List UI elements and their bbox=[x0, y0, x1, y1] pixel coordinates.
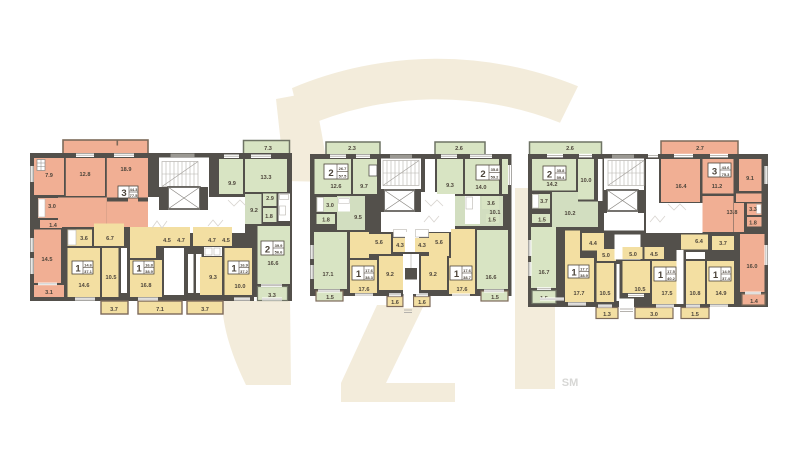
svg-text:17.6: 17.6 bbox=[463, 268, 472, 273]
svg-text:16.9: 16.9 bbox=[240, 263, 249, 268]
svg-text:1: 1 bbox=[136, 264, 142, 275]
svg-text:13.8: 13.8 bbox=[727, 210, 738, 216]
svg-text:37.4: 37.4 bbox=[722, 276, 731, 281]
svg-text:1.5: 1.5 bbox=[538, 218, 546, 224]
svg-text:14.9: 14.9 bbox=[716, 291, 727, 297]
svg-text:16.6: 16.6 bbox=[268, 261, 279, 267]
svg-text:2: 2 bbox=[328, 168, 333, 179]
svg-text:38.9: 38.9 bbox=[145, 269, 154, 274]
svg-text:38.9: 38.9 bbox=[580, 273, 589, 278]
svg-text:3.3: 3.3 bbox=[749, 207, 757, 213]
svg-text:9.7: 9.7 bbox=[360, 184, 368, 190]
svg-text:10.2: 10.2 bbox=[565, 211, 576, 217]
svg-text:3.7: 3.7 bbox=[540, 199, 548, 205]
svg-text:10.8: 10.8 bbox=[690, 291, 701, 297]
svg-text:1: 1 bbox=[571, 268, 577, 279]
svg-text:10.5: 10.5 bbox=[106, 275, 117, 281]
svg-text:9.2: 9.2 bbox=[429, 272, 437, 278]
svg-text:2.6: 2.6 bbox=[455, 146, 463, 152]
svg-text:14.5: 14.5 bbox=[42, 257, 53, 263]
svg-text:9.9: 9.9 bbox=[228, 181, 236, 187]
svg-text:9.2: 9.2 bbox=[250, 208, 258, 214]
svg-text:6.7: 6.7 bbox=[106, 236, 114, 242]
svg-text:3.0: 3.0 bbox=[48, 204, 56, 210]
svg-text:2: 2 bbox=[547, 170, 552, 181]
svg-text:1: 1 bbox=[658, 270, 664, 281]
svg-text:2: 2 bbox=[265, 245, 270, 256]
svg-text:4.5: 4.5 bbox=[163, 238, 171, 244]
svg-text:9.3: 9.3 bbox=[209, 275, 217, 281]
svg-text:4.7: 4.7 bbox=[177, 238, 185, 244]
svg-text:38.3: 38.3 bbox=[365, 275, 374, 280]
svg-text:10.0: 10.0 bbox=[235, 284, 246, 290]
svg-text:16.0: 16.0 bbox=[747, 264, 758, 270]
svg-text:16.6: 16.6 bbox=[486, 275, 497, 281]
svg-text:5.6: 5.6 bbox=[375, 240, 383, 246]
svg-text:2.7: 2.7 bbox=[696, 146, 704, 152]
svg-text:16.7: 16.7 bbox=[539, 270, 550, 276]
svg-text:9.2: 9.2 bbox=[386, 272, 394, 278]
svg-text:10.5: 10.5 bbox=[600, 291, 611, 297]
svg-text:1.6: 1.6 bbox=[391, 300, 399, 306]
svg-text:3.7: 3.7 bbox=[110, 307, 118, 313]
svg-text:14.6: 14.6 bbox=[84, 263, 93, 268]
svg-text:37.1: 37.1 bbox=[84, 269, 93, 274]
svg-text:17.6: 17.6 bbox=[365, 268, 374, 273]
svg-text:1.5: 1.5 bbox=[488, 218, 496, 224]
svg-text:12.8: 12.8 bbox=[80, 172, 91, 178]
svg-text:1.4: 1.4 bbox=[750, 299, 759, 305]
svg-text:6.4: 6.4 bbox=[695, 239, 704, 245]
svg-text:17.5: 17.5 bbox=[667, 269, 676, 274]
svg-text:14.9: 14.9 bbox=[722, 269, 731, 274]
svg-text:14.0: 14.0 bbox=[476, 185, 487, 191]
svg-text:7.1: 7.1 bbox=[156, 307, 164, 313]
svg-text:1.8: 1.8 bbox=[749, 221, 757, 227]
svg-text:1.4: 1.4 bbox=[49, 223, 58, 229]
svg-text:17.5: 17.5 bbox=[662, 291, 673, 297]
svg-text:3: 3 bbox=[712, 167, 717, 178]
svg-text:43.6: 43.6 bbox=[722, 165, 731, 170]
svg-text:39.9: 39.9 bbox=[275, 243, 284, 248]
svg-text:1.8: 1.8 bbox=[322, 218, 330, 224]
svg-text:16.4: 16.4 bbox=[676, 184, 688, 190]
svg-text:3.7: 3.7 bbox=[201, 307, 209, 313]
svg-text:7.3: 7.3 bbox=[264, 146, 272, 152]
svg-text:17.7: 17.7 bbox=[580, 267, 589, 272]
svg-text:9.1: 9.1 bbox=[746, 176, 754, 182]
svg-text:2.6: 2.6 bbox=[566, 146, 574, 152]
svg-text:2: 2 bbox=[480, 169, 485, 180]
svg-text:59.2: 59.2 bbox=[491, 175, 500, 180]
svg-text:1: 1 bbox=[454, 269, 460, 280]
svg-text:4.5: 4.5 bbox=[650, 252, 658, 258]
svg-text:14.6: 14.6 bbox=[79, 283, 90, 289]
svg-text:17.6: 17.6 bbox=[457, 287, 468, 293]
svg-text:2.9: 2.9 bbox=[266, 196, 274, 202]
svg-text:3: 3 bbox=[121, 188, 126, 199]
svg-text:38.7: 38.7 bbox=[463, 275, 472, 280]
svg-text:4.3: 4.3 bbox=[396, 243, 404, 249]
svg-text:37.2: 37.2 bbox=[240, 269, 249, 274]
svg-text:56.6: 56.6 bbox=[275, 250, 284, 255]
svg-text:1.5: 1.5 bbox=[691, 312, 699, 318]
svg-text:17.7: 17.7 bbox=[574, 291, 585, 297]
svg-text:35.8: 35.8 bbox=[557, 168, 566, 173]
svg-text:5.0: 5.0 bbox=[629, 252, 637, 258]
svg-text:12.6: 12.6 bbox=[331, 184, 342, 190]
svg-text:1: 1 bbox=[75, 264, 81, 275]
svg-text:26.7: 26.7 bbox=[339, 166, 348, 171]
svg-text:3.7: 3.7 bbox=[719, 241, 727, 247]
svg-text:16.8: 16.8 bbox=[145, 263, 154, 268]
svg-text:17.1: 17.1 bbox=[323, 272, 334, 278]
svg-text:1.5: 1.5 bbox=[491, 295, 499, 301]
svg-text:1.3: 1.3 bbox=[603, 312, 611, 318]
svg-text:11.2: 11.2 bbox=[712, 184, 723, 190]
svg-text:3.0: 3.0 bbox=[326, 203, 334, 209]
svg-text:13.3: 13.3 bbox=[261, 175, 272, 181]
svg-text:7.9: 7.9 bbox=[45, 173, 53, 179]
svg-text:59.4: 59.4 bbox=[557, 175, 566, 180]
svg-text:5.0: 5.0 bbox=[602, 253, 610, 259]
svg-text:1.5: 1.5 bbox=[326, 295, 334, 301]
svg-text:57.5: 57.5 bbox=[339, 174, 348, 179]
svg-text:1.6: 1.6 bbox=[418, 300, 426, 306]
svg-text:SM: SM bbox=[562, 377, 579, 389]
svg-text:1: 1 bbox=[713, 270, 719, 281]
svg-text:9.5: 9.5 bbox=[354, 215, 362, 221]
svg-text:10.5: 10.5 bbox=[635, 287, 646, 293]
svg-text:35.8: 35.8 bbox=[491, 167, 500, 172]
svg-text:44.3: 44.3 bbox=[130, 187, 139, 192]
svg-text:3.1: 3.1 bbox=[45, 290, 53, 296]
svg-text:10.0: 10.0 bbox=[581, 178, 592, 184]
svg-text:14.2: 14.2 bbox=[547, 182, 558, 188]
svg-text:3.6: 3.6 bbox=[487, 201, 495, 207]
svg-text:40.2: 40.2 bbox=[667, 276, 676, 281]
svg-text:17.6: 17.6 bbox=[359, 287, 370, 293]
svg-text:75.3: 75.3 bbox=[722, 172, 731, 177]
svg-text:4.5: 4.5 bbox=[222, 238, 230, 244]
svg-text:16.8: 16.8 bbox=[141, 283, 152, 289]
svg-text:77.5: 77.5 bbox=[130, 193, 139, 198]
svg-text:1: 1 bbox=[231, 264, 237, 275]
svg-text:4.4: 4.4 bbox=[589, 241, 598, 247]
svg-text:9.3: 9.3 bbox=[446, 183, 454, 189]
svg-text:4.7: 4.7 bbox=[208, 238, 216, 244]
svg-text:4.3: 4.3 bbox=[418, 243, 426, 249]
svg-text:18.9: 18.9 bbox=[121, 167, 132, 173]
svg-text:3.6: 3.6 bbox=[80, 236, 88, 242]
svg-text:3.0: 3.0 bbox=[650, 312, 658, 318]
svg-text:2.3: 2.3 bbox=[348, 146, 356, 152]
svg-text:1.8: 1.8 bbox=[265, 214, 273, 220]
svg-text:5.6: 5.6 bbox=[435, 240, 443, 246]
svg-text:1: 1 bbox=[356, 269, 362, 280]
